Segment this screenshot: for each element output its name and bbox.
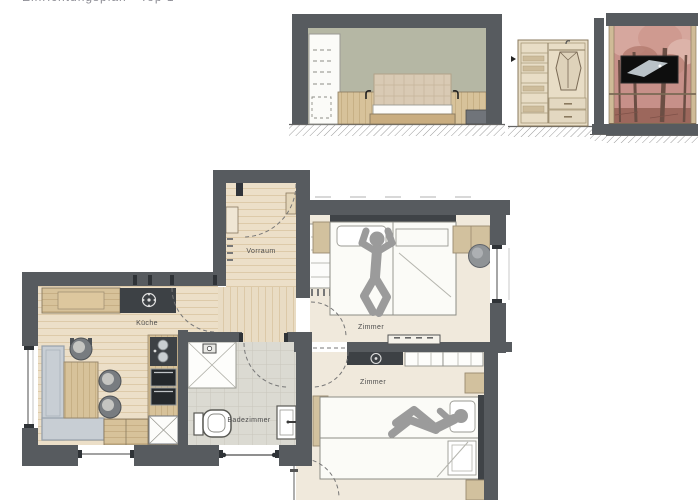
faucet-icon [154,350,157,353]
dining-chair [99,396,121,418]
washbasin [277,406,296,439]
room-label-zimmer-top: Zimmer [358,324,384,331]
tv-screen [621,56,678,83]
cabinet-row [405,352,483,366]
floor-slab [606,124,698,135]
dark-cabinet [466,110,488,124]
bed-platform [370,114,455,124]
kitchen-tall-unit [148,335,178,445]
vorraum-floor [226,183,296,287]
dining-chair [99,370,121,392]
wardrobe-elevation-white [309,34,340,124]
double-bed [330,215,456,315]
dining-chair [70,338,92,360]
arrow-marker-icon [511,56,516,62]
plan-svg: Vorraum [0,0,700,500]
wall-section [594,18,604,126]
bed-side-panel-left [338,92,375,124]
room-label-badezimmer: Badezimmer [227,417,271,424]
wall-section-right [486,14,502,124]
room-label-kueche: Küche [136,320,158,327]
sink-bowl [158,340,168,350]
floor-hatch [289,124,505,136]
floor-plan: Vorraum [22,170,512,500]
room-label-vorraum: Vorraum [246,248,275,255]
toilet [194,410,231,437]
elevation-wardrobe-section [508,18,604,137]
wardrobe-drawers [549,98,586,123]
shower [188,342,236,388]
hall-shelf [226,207,238,233]
forest-ground [611,108,693,125]
elevation-mural-wall [590,13,699,143]
window-left [22,346,38,428]
window-bedroom1-right [490,245,509,303]
hall-cabinet [286,193,296,214]
wall-niche-sideboard [388,335,440,344]
sink-bowl [158,352,168,362]
cooktop-icon [143,294,156,307]
headboard [330,215,456,222]
window-bottom-bathroom [219,445,279,466]
shelf-post-left [609,25,614,125]
corner-bench [42,418,104,440]
armchair-round [469,245,492,268]
ceiling-slab [606,13,698,26]
architectural-drawing: Einrichtungsplan · Top 1 [0,0,700,500]
floor-hatch [508,126,604,137]
oven [151,369,176,386]
nightstand [465,373,486,393]
tufted-headboard [374,74,451,107]
dining-table [64,362,98,418]
elevation-bedroom-section [289,14,505,136]
nightstand [313,222,331,253]
oven [151,388,176,405]
nightstand [466,480,486,500]
room-label-zimmer-bottom: Zimmer [360,379,386,386]
entrance-door-leaf [236,183,243,196]
wall-section-left [292,14,308,124]
wooden-sideboard [104,419,148,445]
shelf-post-right [691,25,696,125]
mattress [373,105,452,115]
ceiling-slab [292,14,502,28]
corridor-floor [218,287,296,332]
window-bottom-kitchen [78,445,134,466]
floor-hatch [606,135,698,143]
double-bed [320,395,486,481]
